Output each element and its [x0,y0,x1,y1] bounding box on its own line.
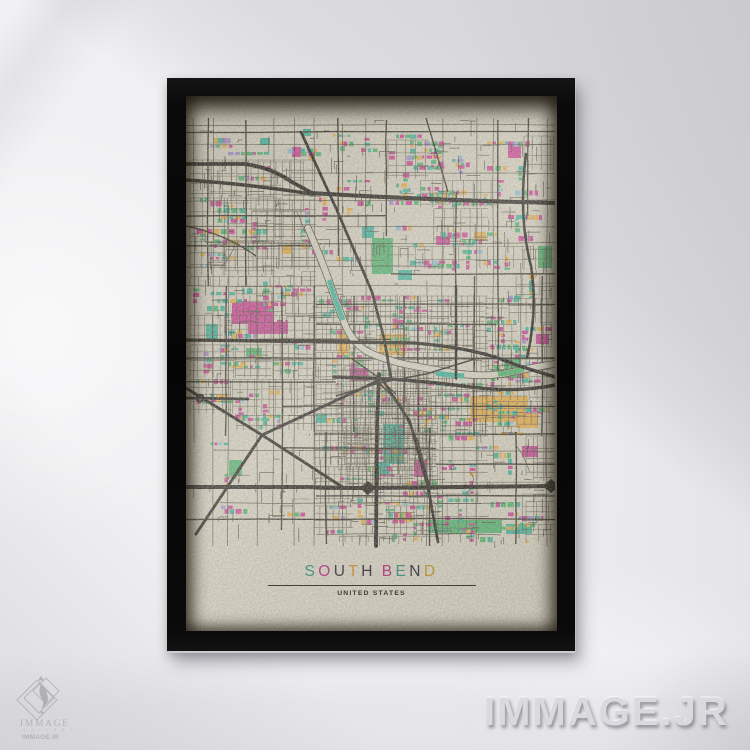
svg-text:IMMAGE.IR: IMMAGE.IR [22,734,59,741]
svg-text:G A L L E R Y: G A L L E R Y [23,728,75,732]
